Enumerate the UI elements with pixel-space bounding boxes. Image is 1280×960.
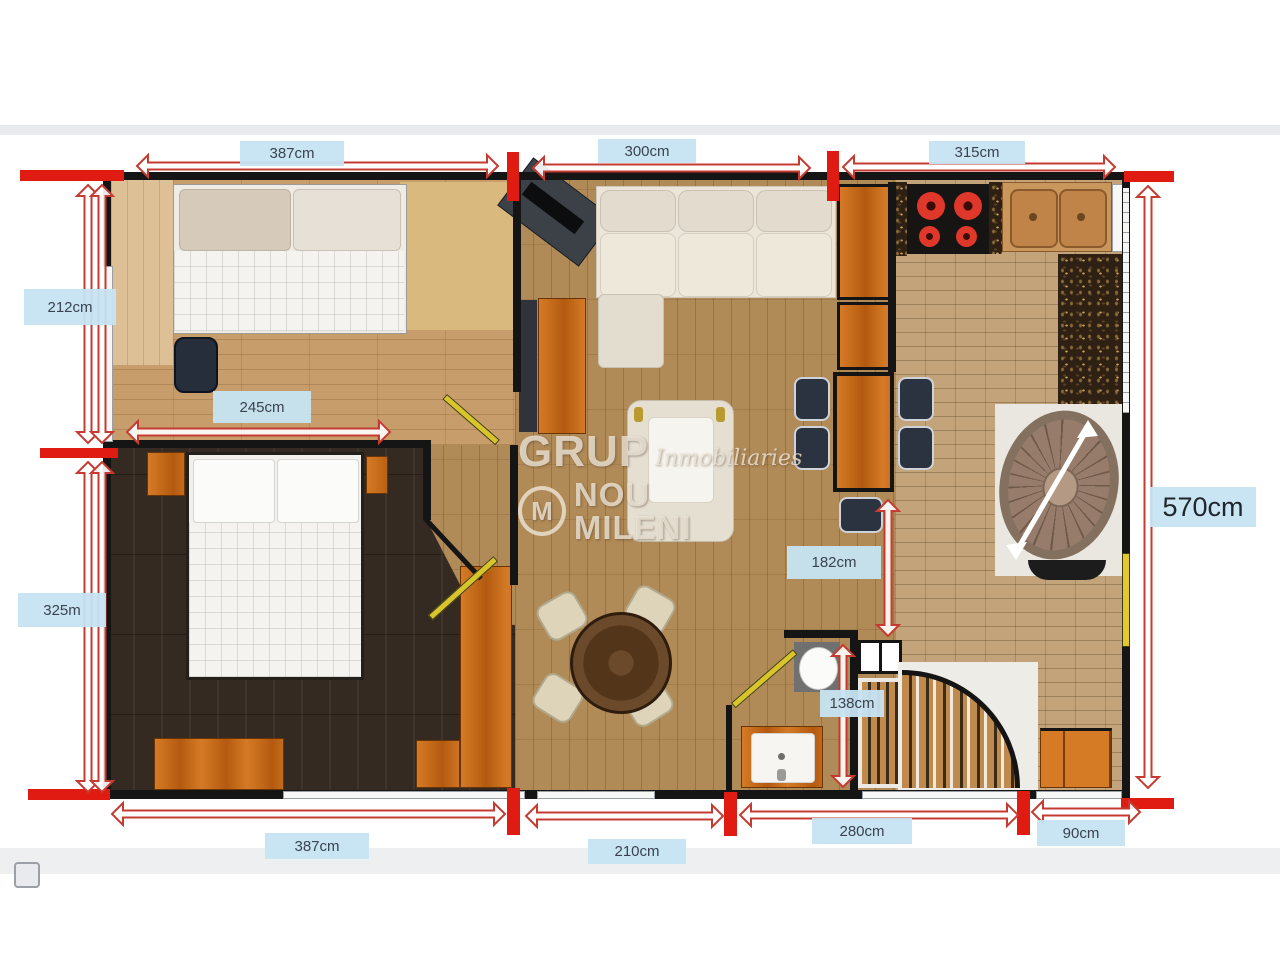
- wall-marker: [40, 448, 118, 458]
- watermark-script: Inmobiliaries: [655, 448, 802, 470]
- dimension-label-inner-182: 182cm: [787, 546, 881, 579]
- double-sink: [1002, 182, 1112, 252]
- burner: [956, 226, 977, 247]
- round-dining-table: [570, 612, 672, 714]
- wall-hall-right: [510, 445, 518, 585]
- counter-granite-mid: [989, 182, 1002, 254]
- dimension-label-left-1: 212cm: [24, 289, 116, 325]
- bedroom1-desk-chair: [174, 337, 218, 393]
- wall-marker: [827, 151, 839, 201]
- dimension-label-left-2: 325m: [18, 593, 106, 627]
- wall-bedroom1-living: [513, 178, 521, 392]
- bedroom2-dresser-topleft: [147, 452, 185, 496]
- sofa-seat-cushion: [756, 233, 832, 297]
- wall-marker: [1121, 798, 1174, 809]
- watermark-brand: NOU MILENI: [574, 478, 768, 544]
- bedroom2-dresser-bottom: [154, 738, 284, 790]
- bedroom2-bed: [186, 452, 364, 680]
- bedroom1-wardrobe: [111, 180, 173, 365]
- sideboard: [538, 298, 586, 434]
- bathroom-sink-cabinet: [741, 726, 823, 788]
- duvet: [174, 251, 404, 331]
- bathroom-cabinet-right: [1040, 728, 1112, 788]
- staircase-hub: [1039, 464, 1083, 511]
- dimension-label-inner-138: 138cm: [820, 690, 884, 717]
- window-bedroom2-bottom: [283, 791, 525, 799]
- sink-drain: [1029, 213, 1037, 221]
- dimension-arrow: [77, 462, 99, 792]
- corner-icon: [14, 862, 40, 888]
- wall-hall-jog: [423, 440, 431, 520]
- counter-granite-column: [1058, 254, 1124, 406]
- top-page-band: [0, 125, 1280, 135]
- dimension-label-bottom-3: 280cm: [812, 818, 912, 844]
- dining-table-rect: [833, 372, 894, 492]
- wall-marker: [507, 152, 519, 201]
- shower-slats-curved: [902, 670, 1020, 788]
- burner: [919, 226, 940, 247]
- dimension-label-bottom-4: 90cm: [1037, 820, 1125, 846]
- dining-chair: [839, 497, 883, 533]
- duvet: [189, 523, 361, 677]
- wall-marker: [28, 789, 110, 800]
- window-mullion: [879, 643, 882, 671]
- pillow: [277, 459, 359, 523]
- sofa-seat-cushion: [600, 233, 676, 297]
- agency-logo-icon: M: [518, 486, 566, 536]
- dimension-arrow: [112, 803, 505, 825]
- pillow: [179, 189, 291, 251]
- tall-cabinet-2: [837, 302, 891, 370]
- sofa-back-cushion: [678, 190, 754, 232]
- dimension-label-inner-245: 245cm: [213, 391, 311, 423]
- tall-cabinet-1: [837, 184, 891, 300]
- staircase-base-step: [1028, 560, 1106, 580]
- bedroom1-desk: [400, 182, 513, 330]
- stove: [907, 184, 989, 254]
- sofa: [596, 186, 836, 298]
- shower-window: [858, 640, 902, 674]
- dining-chair: [898, 377, 934, 421]
- dimension-label-top-2: 300cm: [598, 139, 696, 163]
- wall-bedroom1-bedroom2: [103, 440, 431, 448]
- wall-living-kitchen: [888, 182, 896, 372]
- window-shower-bottom: [862, 791, 1028, 799]
- window-hall-bottom: [537, 791, 655, 799]
- dimension-label-top-1: 387cm: [240, 141, 344, 166]
- bedroom2-dresser-bottom2: [416, 740, 460, 788]
- burner: [954, 192, 982, 220]
- wall-marker: [724, 792, 737, 836]
- window-right-yellow: [1122, 553, 1130, 647]
- shower-area: [898, 662, 1038, 790]
- window-right-upper: [1123, 188, 1129, 413]
- wall-marker: [507, 788, 520, 835]
- wall-marker: [1017, 791, 1030, 835]
- window-right-bottom: [1036, 791, 1122, 799]
- watermark-grup: GRUP: [518, 430, 649, 474]
- agency-watermark: GRUP Inmobiliaries M NOU MILENI: [518, 430, 768, 544]
- floor-plan-page: 387cm 300cm 315cm 212cm 325m 245cm 182cm…: [0, 0, 1280, 960]
- toilet: [799, 647, 838, 690]
- dimension-label-bottom-2: 210cm: [588, 839, 686, 864]
- armchair-cap: [634, 407, 643, 422]
- sofa-back-cushion: [756, 190, 832, 232]
- sofa-back-cushion: [600, 190, 676, 232]
- dining-chair: [898, 426, 934, 470]
- dimension-label-right-570: 570cm: [1150, 487, 1256, 527]
- dimension-label-bottom-1: 387cm: [265, 833, 369, 859]
- wall-bathroom-top: [784, 630, 854, 638]
- wall-top: [103, 172, 1130, 180]
- dining-chair: [794, 377, 830, 421]
- wall-bathroom-left: [726, 705, 732, 790]
- bedroom1-bed: [173, 184, 407, 334]
- armchair-cap: [716, 407, 725, 422]
- wall-marker: [1124, 171, 1174, 182]
- sink-drain: [1077, 213, 1085, 221]
- bedroom2-wardrobe-right: [460, 566, 512, 788]
- pillow: [293, 189, 401, 251]
- pillow: [193, 459, 275, 523]
- dimension-label-top-3: 315cm: [929, 141, 1025, 164]
- sofa-chaise: [598, 294, 664, 368]
- dimension-arrow: [526, 805, 723, 827]
- sofa-seat-cushion: [678, 233, 754, 297]
- burner: [917, 192, 945, 220]
- wall-marker: [20, 170, 124, 181]
- faucet: [777, 769, 786, 781]
- tv-sideboard-screen: [519, 300, 537, 432]
- bedroom2-nightstand: [366, 456, 388, 494]
- basin-drain: [778, 753, 785, 760]
